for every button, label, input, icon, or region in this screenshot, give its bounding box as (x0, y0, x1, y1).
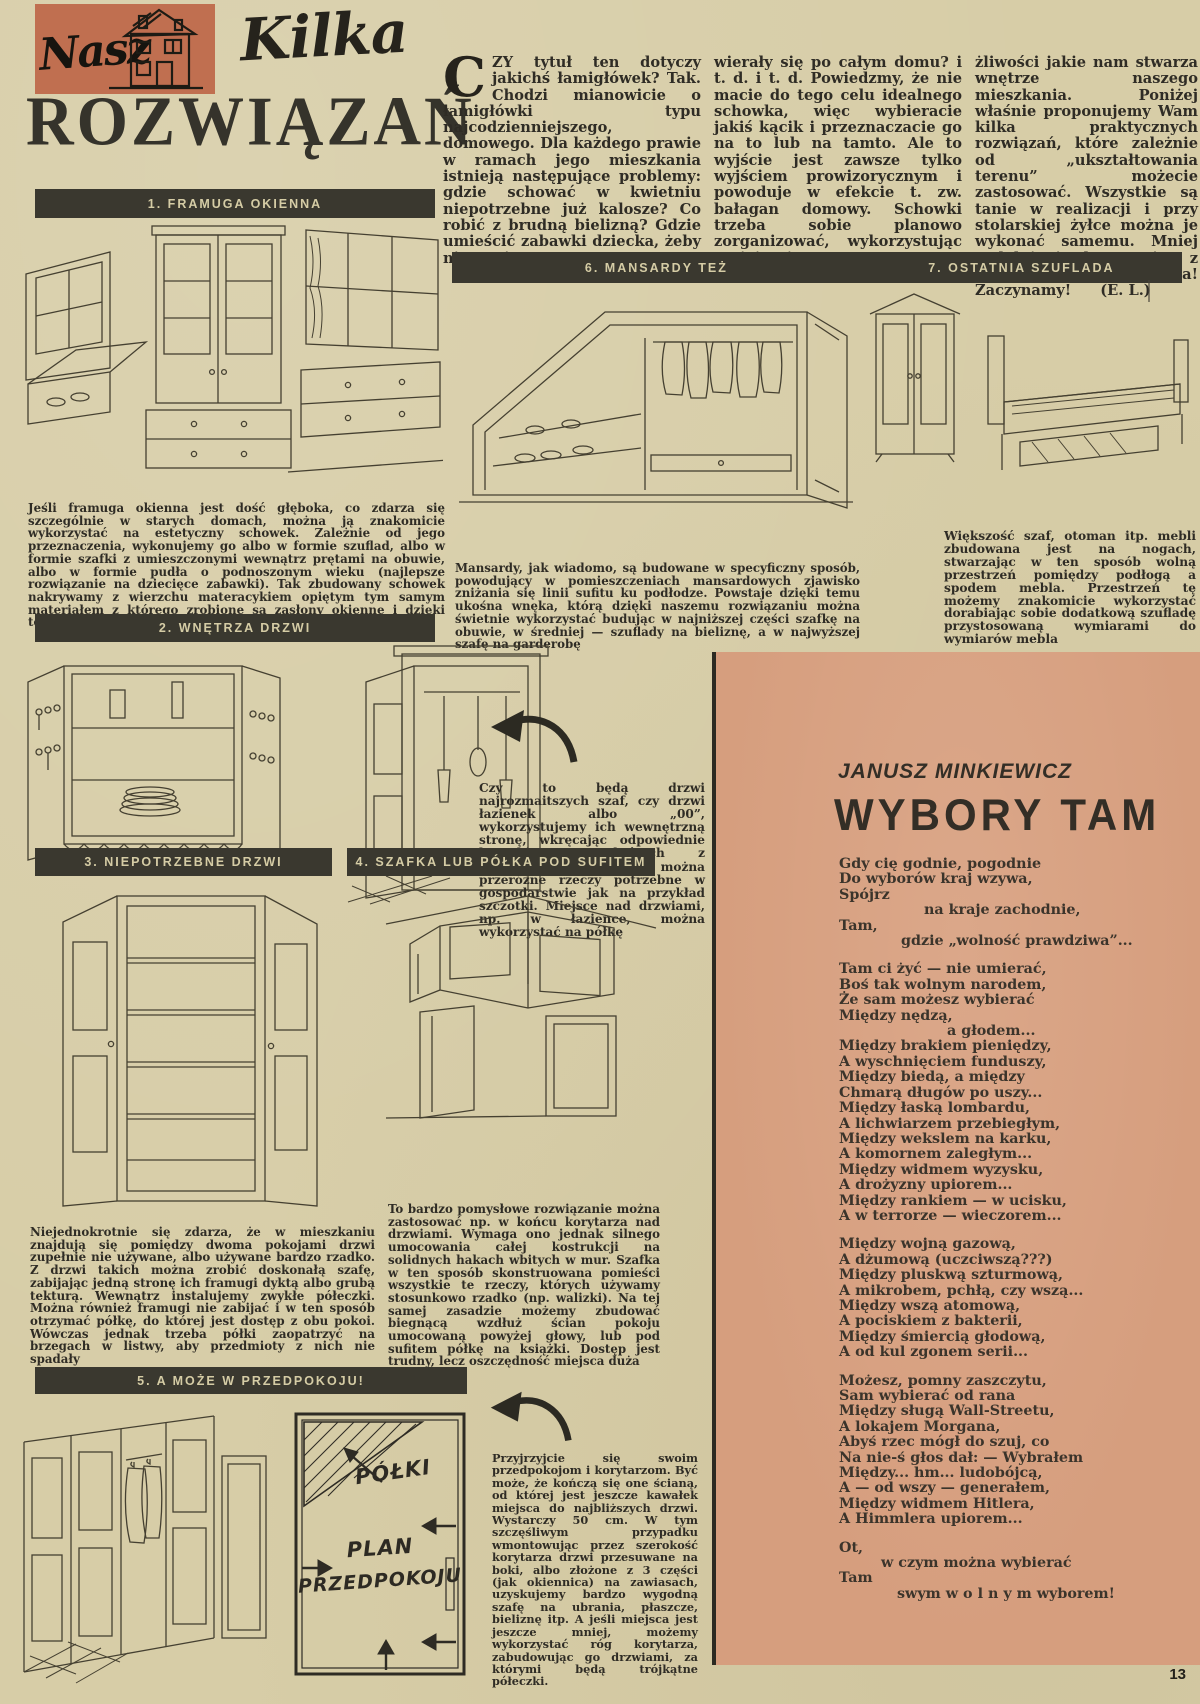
poem-line: Między sługą Wall-Streetu, (839, 1404, 1179, 1419)
poem-line: A lichwiarzem przebiegłym, (839, 1117, 1179, 1132)
poem-line: Chmarą długów po uszy... (839, 1086, 1179, 1101)
section-6-text: Mansardy, jak wiadomo, są budowane w spe… (455, 561, 860, 651)
poem-stanza: Ot,w czym można wybieraćTamswym w o l n … (839, 1541, 1179, 1603)
section-7-paragraph: Większość szaf, otoman itp. mebli zbudow… (944, 530, 1196, 646)
illustration-window-recess (18, 222, 443, 497)
illustration-door-cupboard (45, 884, 340, 1219)
poem-line: Między biedą, a między (839, 1070, 1179, 1085)
section-header-3: 3. NIEPOTRZEBNE DRZWI (35, 848, 332, 876)
intro-column-2: wierały się po całym domu? i t. d. i t. … (714, 55, 962, 267)
poem-line: A w terrorze — wieczorem... (839, 1209, 1179, 1224)
poem-line: A pociskiem z bakterii, (839, 1314, 1179, 1329)
poem-line: A wyschnięciem funduszy, (839, 1055, 1179, 1070)
section-4-paragraph: To bardzo pomysłowe rozwiązanie można za… (388, 1203, 660, 1368)
illustration-wardrobe-bed-drawer (862, 284, 1197, 484)
page-number: 13 (1169, 1666, 1186, 1683)
poem-line: Między wekslem na karku, (839, 1132, 1179, 1147)
poem-stanza: Możesz, pomny zaszczytu,Sam wybierać od … (839, 1374, 1179, 1528)
poem-line: Abyś rzec mógł do szuj, co (839, 1435, 1179, 1450)
arrow-left-icon (488, 706, 580, 768)
section-header-2-label: 2. WNĘTRZA DRZWI (159, 621, 311, 635)
section-6-paragraph: Mansardy, jak wiadomo, są budowane w spe… (455, 562, 860, 651)
magazine-logo: Nasz (35, 4, 215, 94)
poem-line: na kraje zachodnie, (839, 903, 1179, 918)
poem-stanza: Między wojną gazową,A dżumową (uczciwszą… (839, 1237, 1179, 1360)
poem-line: A — od wszy — generałem, (839, 1481, 1179, 1496)
section-header-6-7: 6. MANSARDY TEŻ 7. OSTATNIA SZUFLADA (452, 252, 1182, 283)
poem-line: A dżumową (uczciwszą???) (839, 1253, 1179, 1268)
poem-line: Możesz, pomny zaszczytu, (839, 1374, 1179, 1389)
poem-box: JANUSZ MINKIEWICZ WYBORY TAM Gdy cię god… (712, 652, 1200, 1665)
intro-text-2: wierały się po całym domu? i t. d. i t. … (714, 54, 962, 267)
section-header-1-label: 1. FRAMUGA OKIENNA (148, 197, 322, 211)
arrow-left-icon (487, 1388, 575, 1446)
poem-line: A lokajem Morgana, (839, 1420, 1179, 1435)
poem-line: Tam ci żyć — nie umierać, (839, 962, 1179, 977)
poem-line: gdzie „wolność prawdziwa”... (839, 934, 1179, 949)
section-header-2: 2. WNĘTRZA DRZWI (35, 614, 435, 642)
section-header-6-label: 6. MANSARDY TEŻ (585, 261, 728, 275)
poem-stanza: Tam ci żyć — nie umierać,Boś tak wolnym … (839, 962, 1179, 1224)
poem-line: A Himmlera upiorem... (839, 1512, 1179, 1527)
poem-line: Ot, (839, 1541, 1179, 1556)
poem-line: A mikrobem, pchłą, czy wszą... (839, 1284, 1179, 1299)
section-header-3-label: 3. NIEPOTRZEBNE DRZWI (84, 855, 282, 869)
poem-line: Między wojną gazową, (839, 1237, 1179, 1252)
section-header-4: 4. SZAFKA LUB PÓŁKA POD SUFITEM (347, 848, 655, 876)
poem-line: a głodem... (839, 1024, 1179, 1039)
poem-line: Że sam możesz wybierać (839, 993, 1179, 1008)
poem-stanza: Gdy cię godnie, pogodnieDo wyborów kraj … (839, 857, 1179, 949)
poem-line: Sam wybierać od rana (839, 1389, 1179, 1404)
section-5-text: Przyjrzyjcie się swoim przedpokojom i ko… (492, 1451, 698, 1688)
poem-line: Do wyborów kraj wzywa, (839, 872, 1179, 887)
hallway-plan-diagram: PÓŁKI PLAN PRZEDPOKOJU (290, 1408, 470, 1680)
poem-line: Między łaską lombardu, (839, 1101, 1179, 1116)
section-5-paragraph: Przyjrzyjcie się swoim przedpokojom i ko… (492, 1452, 698, 1688)
section-4-text: To bardzo pomysłowe rozwiązanie można za… (388, 1202, 660, 1368)
section-header-6: 6. MANSARDY TEŻ (452, 261, 861, 275)
poem-body: Gdy cię godnie, pogodnieDo wyborów kraj … (839, 857, 1179, 1615)
section-1-text: Jeśli framuga okienna jest dość głęboka,… (28, 501, 445, 629)
poem-line: Tam (839, 1571, 1179, 1586)
title-rozwiazan: ROZWIĄZAŃ (26, 82, 475, 163)
section-header-4-label: 4. SZAFKA LUB PÓŁKA POD SUFITEM (356, 855, 647, 869)
intro-column-1: CZY tytuł ten dotyczy jakichś łamigłówek… (443, 55, 701, 267)
poem-line: Między nędzą, (839, 1009, 1179, 1024)
poem-line: Między śmiercią głodową, (839, 1330, 1179, 1345)
section-7-text: Większość szaf, otoman itp. mebli zbudow… (944, 529, 1196, 646)
house-icon (99, 4, 213, 94)
poem-title: WYBORY TAM (834, 790, 1160, 840)
poem-line: Między pluskwą szturmową, (839, 1268, 1179, 1283)
poem-line: w czym można wybierać (839, 1556, 1179, 1571)
section-header-5: 5. A MOŻE W PRZEDPOKOJU! (35, 1367, 467, 1394)
poem-line: swym w o l n y m wyborem! (839, 1587, 1179, 1602)
drop-cap: C (443, 55, 492, 97)
title-kilka: Kilka (238, 0, 409, 74)
illustration-hallway-wardrobe (16, 1400, 271, 1690)
poem-line: Między rankiem — w ucisku, (839, 1194, 1179, 1209)
poem-author: JANUSZ MINKIEWICZ (838, 760, 1072, 784)
poem-line: A od kul zgonem serii... (839, 1345, 1179, 1360)
poem-line: A komornem zaległym... (839, 1147, 1179, 1162)
poem-line: Boś tak wolnym narodem, (839, 978, 1179, 993)
section-header-1: 1. FRAMUGA OKIENNA (35, 189, 435, 218)
magazine-page: Nasz Kilka ROZWIĄZAŃ CZY tytuł ten dotyc… (0, 0, 1200, 1704)
poem-line: Gdy cię godnie, pogodnie (839, 857, 1179, 872)
section-header-7: 7. OSTATNIA SZUFLADA (861, 261, 1182, 275)
poem-line: Na nie-ś głos dał: — Wybrałem (839, 1451, 1179, 1466)
poem-line: Między brakiem pieniędzy, (839, 1039, 1179, 1054)
poem-line: Między widmem wyzysku, (839, 1163, 1179, 1178)
section-3-text: Niejednokrotnie się zdarza, że w mieszka… (30, 1225, 375, 1366)
poem-line: Między wszą atomową, (839, 1299, 1179, 1314)
section-header-7-label: 7. OSTATNIA SZUFLADA (928, 261, 1114, 275)
illustration-overhead-cabinet (378, 884, 663, 1119)
poem-line: Tam, (839, 919, 1179, 934)
section-3-paragraph: Niejednokrotnie się zdarza, że w mieszka… (30, 1226, 375, 1366)
poem-line: A drożyzny upiorem... (839, 1178, 1179, 1193)
illustration-mansard-closet (455, 290, 855, 550)
poem-line: Spójrz (839, 888, 1179, 903)
poem-line: Między widmem Hitlera, (839, 1497, 1179, 1512)
section-1-paragraph: Jeśli framuga okienna jest dość głęboka,… (28, 502, 445, 629)
poem-line: Między... hm... ludobójcą, (839, 1466, 1179, 1481)
section-header-5-label: 5. A MOŻE W PRZEDPOKOJU! (137, 1374, 365, 1388)
